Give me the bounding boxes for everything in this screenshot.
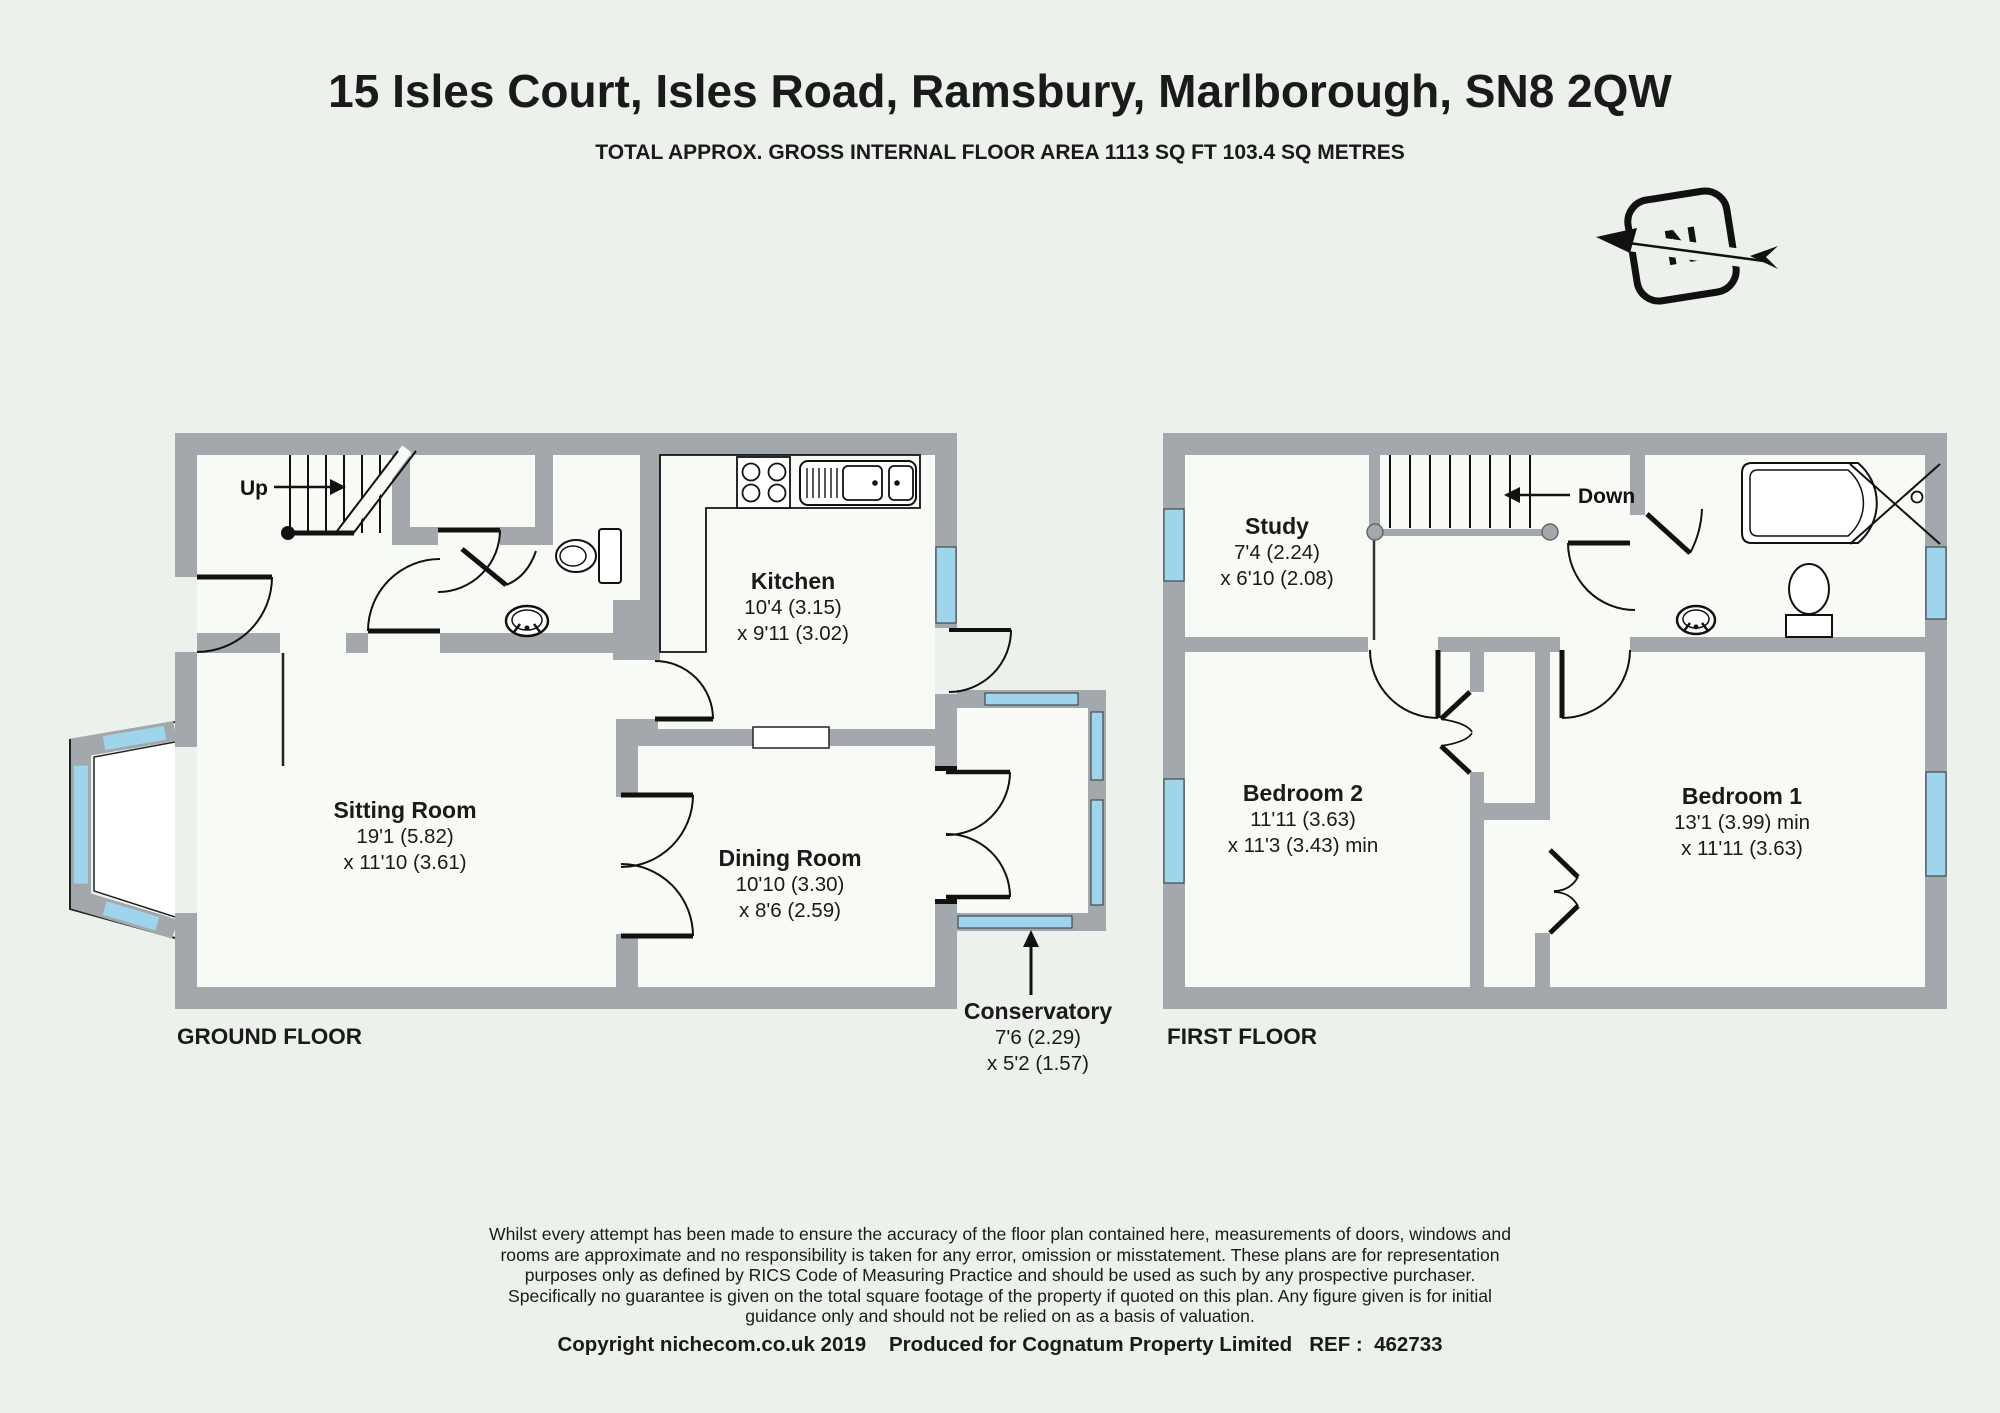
room-label-bedroom-1: Bedroom 1 13'1 (3.99) min x 11'11 (3.63) bbox=[1674, 783, 1810, 862]
first-floor-label: FIRST FLOOR bbox=[1167, 1024, 1317, 1050]
bathroom-toilet-icon bbox=[1786, 564, 1832, 637]
room-label-kitchen: Kitchen 10'4 (3.15) x 9'11 (3.02) bbox=[737, 568, 849, 647]
bathroom-basin-icon bbox=[1677, 606, 1715, 634]
room-label-bedroom-2: Bedroom 2 11'11 (3.63) x 11'3 (3.43) min bbox=[1228, 780, 1379, 859]
room-label-study: Study 7'4 (2.24) x 6'10 (2.08) bbox=[1220, 513, 1333, 592]
disclaimer-text: Whilst every attempt has been made to en… bbox=[0, 1224, 2000, 1327]
compass-icon: N bbox=[1596, 188, 1778, 304]
floorplan-drawing: N bbox=[0, 0, 2000, 1413]
floorplan-page: 15 Isles Court, Isles Road, Ramsbury, Ma… bbox=[0, 0, 2000, 1413]
room-label-dining-room: Dining Room 10'10 (3.30) x 8'6 (2.59) bbox=[718, 845, 861, 924]
copyright-text: Copyright nichecom.co.uk 2019 Produced f… bbox=[0, 1333, 2000, 1357]
wc-basin-icon bbox=[506, 606, 548, 636]
stairs-up-label: Up bbox=[240, 477, 268, 500]
kitchen-hob-icon bbox=[737, 457, 790, 508]
room-label-sitting-room: Sitting Room 19'1 (5.82) x 11'10 (3.61) bbox=[333, 797, 476, 876]
stairs-down-label: Down bbox=[1578, 485, 1635, 508]
room-label-conservatory: Conservatory 7'6 (2.29) x 5'2 (1.57) bbox=[964, 998, 1112, 1077]
conservatory-arrowhead bbox=[1023, 930, 1039, 947]
ground-floor-label: GROUND FLOOR bbox=[177, 1024, 362, 1050]
kitchen-sink-icon bbox=[800, 461, 916, 505]
ground-floor-plan: Up bbox=[70, 433, 1106, 1009]
